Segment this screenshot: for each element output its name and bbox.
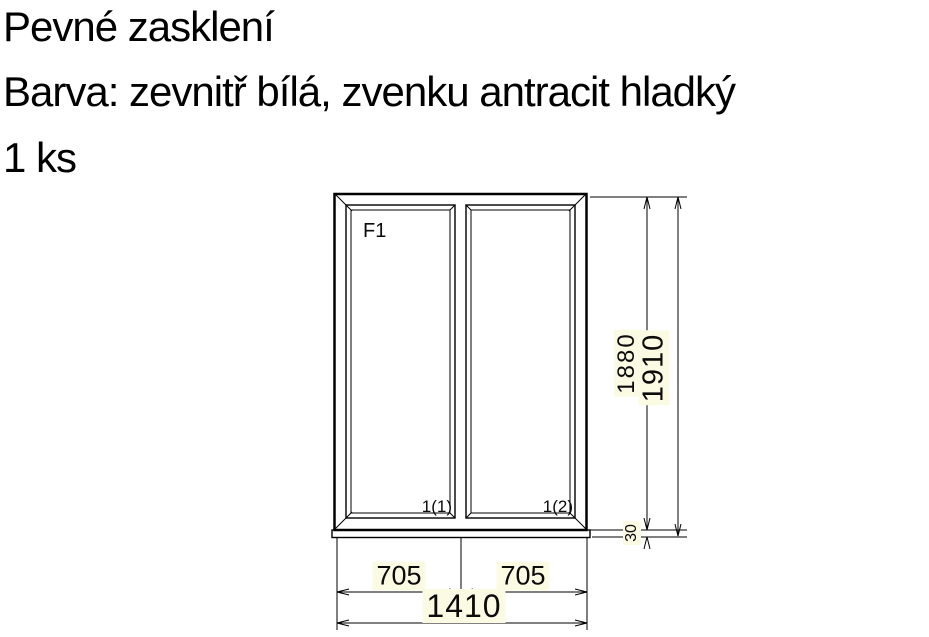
glass-left: [351, 210, 450, 513]
dim-total-height: 1910: [639, 331, 670, 406]
window-drawing: [0, 0, 929, 637]
dim-total-width: 1410: [422, 589, 505, 623]
quote-page: Pevné zasklení Barva: zevnitř bílá, zven…: [0, 0, 929, 637]
pane-label-right: 1(2): [543, 498, 573, 515]
dim-pane-width-right: 705: [496, 562, 549, 591]
pane-label-left: 1(1): [422, 498, 452, 515]
frame-label: F1: [363, 221, 386, 241]
glass-right: [471, 210, 570, 513]
window-outer-frame: [335, 194, 587, 530]
dim-frame-height: 1880: [614, 329, 640, 396]
pane-opening-left: [346, 205, 455, 518]
frame-mitre-lines: [335, 194, 586, 529]
pane-opening-right: [466, 205, 575, 518]
dim-pane-width-left: 705: [372, 562, 425, 591]
dim-sill-extension: 30: [623, 521, 641, 545]
